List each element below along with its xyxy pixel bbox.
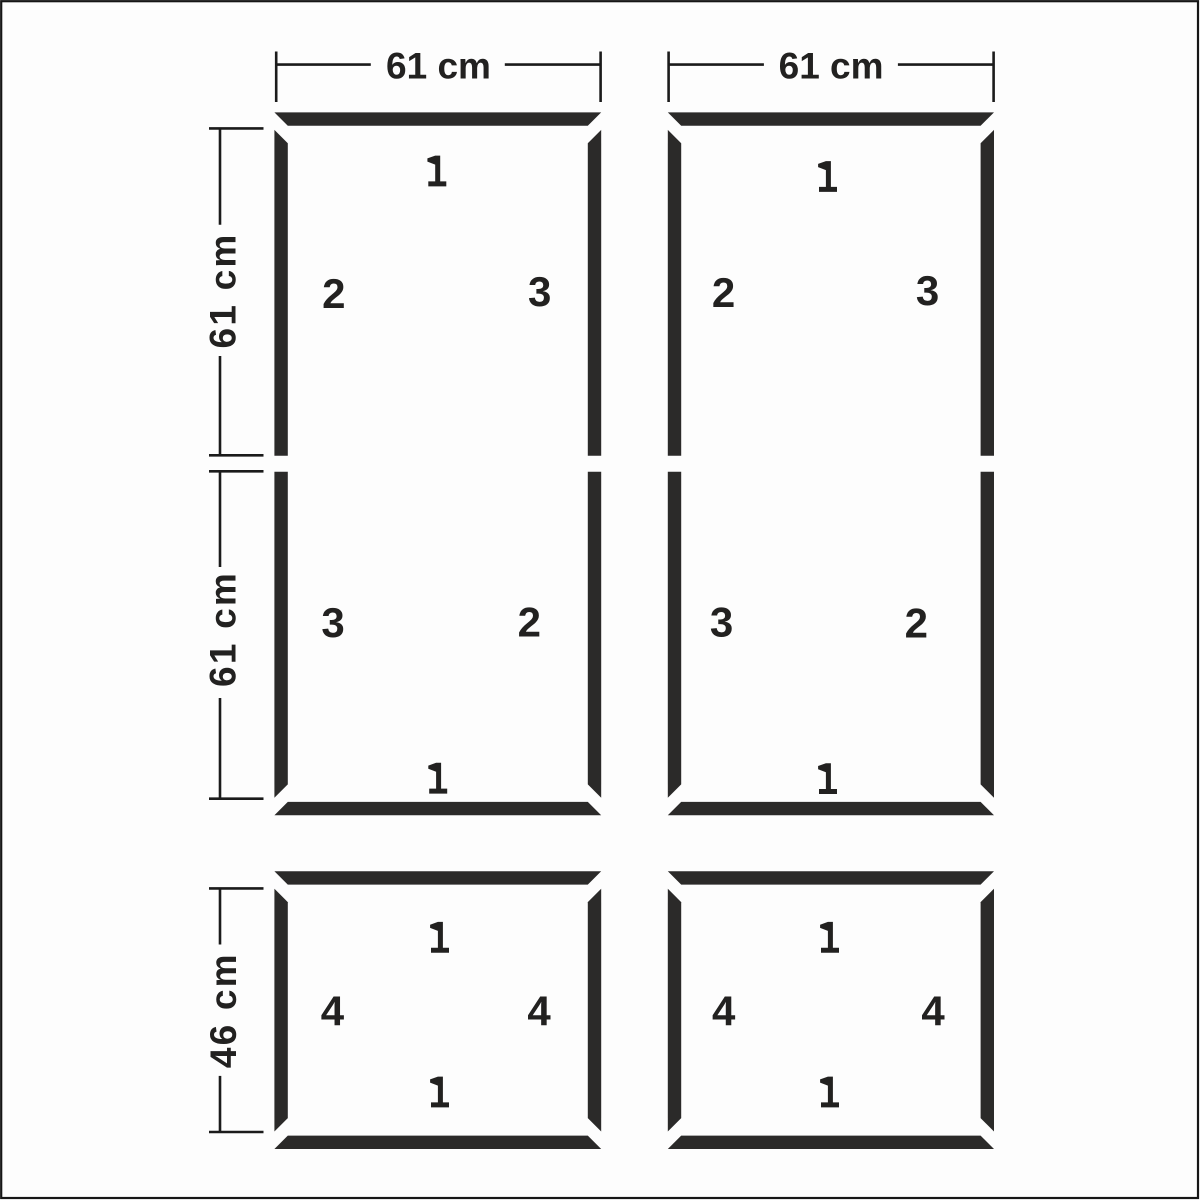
svg-text:3: 3	[528, 268, 551, 315]
svg-text:4: 4	[921, 987, 945, 1034]
svg-text:3: 3	[710, 599, 733, 646]
svg-text:61 cm: 61 cm	[202, 233, 243, 349]
svg-text:46 cm: 46 cm	[203, 952, 244, 1068]
svg-text:3: 3	[916, 267, 939, 314]
svg-text:61 cm: 61 cm	[202, 571, 243, 687]
svg-text:2: 2	[905, 599, 928, 646]
svg-text:4: 4	[321, 987, 345, 1034]
svg-text:2: 2	[712, 269, 735, 316]
svg-text:61 cm: 61 cm	[386, 46, 491, 87]
svg-text:2: 2	[322, 270, 345, 317]
svg-text:4: 4	[527, 987, 551, 1034]
svg-text:2: 2	[518, 598, 541, 645]
svg-text:3: 3	[321, 599, 344, 646]
svg-text:61 cm: 61 cm	[779, 46, 884, 87]
svg-text:4: 4	[712, 987, 736, 1034]
